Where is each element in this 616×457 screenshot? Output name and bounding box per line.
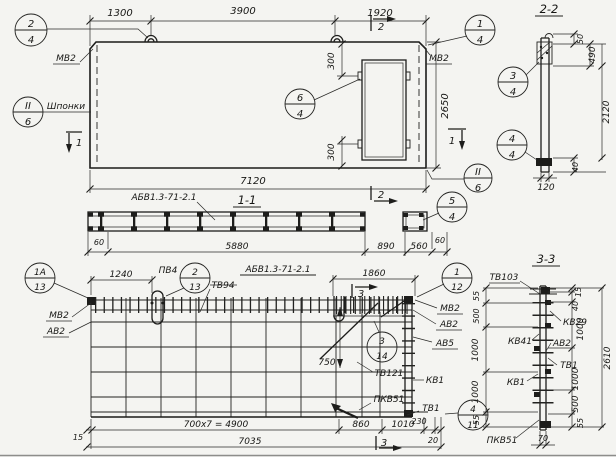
top-view: 1300 3900 1920 7120 2650 300 300 1 1 2 bbox=[47, 6, 466, 204]
callout-bottom: 11 bbox=[467, 421, 478, 431]
marker-3-label: 3 bbox=[358, 289, 364, 300]
callout-bottom: 6 bbox=[25, 117, 31, 128]
label-pv4: ПВ4 bbox=[159, 266, 178, 276]
label-mv2: МВ2 bbox=[49, 311, 69, 321]
bottom-anchor-block bbox=[536, 158, 552, 166]
callout-top: 5 bbox=[449, 196, 455, 207]
dim-70: 70 bbox=[538, 434, 548, 443]
callout-top: II bbox=[475, 167, 481, 178]
marker-2-label: 2 bbox=[378, 22, 384, 33]
section-2-2-title: 2-2 bbox=[540, 2, 559, 16]
dim-490: 490 bbox=[588, 46, 598, 63]
dim-55: 55 bbox=[472, 291, 481, 301]
section-2-2: 2-2 50 490 2120 40 120 bbox=[533, 2, 612, 193]
callout-bottom: 4 bbox=[477, 35, 483, 46]
dim-5880: 5880 bbox=[226, 242, 249, 252]
label-tv1: ТВ1 bbox=[560, 361, 577, 371]
callout-bottom: 4 bbox=[297, 109, 303, 120]
anchor-blocks bbox=[534, 287, 551, 428]
callout-bottom: 13 bbox=[189, 283, 201, 293]
callout-3-4: 3 4 bbox=[498, 62, 539, 98]
slab-profile bbox=[88, 212, 365, 231]
marker-2-label: 2 bbox=[378, 190, 384, 201]
dim-15: 15 bbox=[73, 433, 83, 442]
section-marker-3-bottom: 3 bbox=[376, 436, 402, 451]
label-kv41: КВ41 bbox=[508, 337, 532, 347]
dim-1860: 1860 bbox=[363, 269, 386, 279]
panel-outline bbox=[90, 42, 426, 168]
label-kv1: КВ1 bbox=[426, 376, 444, 386]
callout-1A-13: 1А 13 bbox=[25, 263, 88, 298]
label-av2: АВ2 bbox=[552, 339, 571, 349]
dim-40: 40 bbox=[571, 301, 580, 311]
label-tv103: ТВ103 bbox=[490, 273, 519, 283]
callout-top: 3 bbox=[379, 337, 385, 347]
section-3-3: 3-3 55 500 1000 1000 55 15 40 1000 1000 … bbox=[471, 252, 613, 449]
dim-500: 500 bbox=[571, 395, 581, 412]
section-1-1: 1-1 АБВ1.3-71-2.1 60 5880 890 560 60 bbox=[85, 193, 451, 256]
label-av2: АВ2 bbox=[46, 327, 65, 337]
end-slab-piece bbox=[403, 212, 427, 231]
label-tv121: ТВ121 bbox=[375, 369, 404, 379]
dim-750: 750 bbox=[318, 358, 335, 368]
dim-60-right: 60 bbox=[435, 236, 445, 245]
callout-bottom: 12 bbox=[451, 283, 463, 293]
dim-300-top: 300 bbox=[327, 52, 337, 69]
dim-40: 40 bbox=[571, 162, 580, 172]
dim-3900: 3900 bbox=[230, 6, 255, 17]
callout-top: 1 bbox=[454, 268, 460, 278]
callout-1-4: 1 4 bbox=[428, 15, 495, 46]
section-3-3-title: 3-3 bbox=[537, 252, 556, 266]
callout-II-6-right: II 6 bbox=[427, 164, 492, 194]
edge-ladder-kv1 bbox=[405, 298, 412, 417]
callout-bottom: 14 bbox=[376, 352, 388, 362]
dim-700x7: 700x7 = 4900 bbox=[184, 420, 249, 430]
label-kv1: КВ1 bbox=[507, 378, 525, 388]
callout-top: II bbox=[25, 101, 31, 112]
dim-230: 230 bbox=[411, 417, 426, 426]
callout-bottom: 4 bbox=[28, 35, 34, 46]
section-1-1-title: 1-1 bbox=[238, 193, 257, 207]
callout-top: 4 bbox=[470, 405, 476, 415]
callout-bottom: 4 bbox=[510, 87, 516, 98]
reinforcement-plan: АБВ1.3-71-2.1 1240 bbox=[43, 265, 463, 451]
dim-120: 120 bbox=[537, 183, 554, 193]
dim-1000: 1000 bbox=[471, 338, 481, 361]
callout-3-14: 3 14 bbox=[367, 321, 397, 362]
dim-2650: 2650 bbox=[440, 93, 451, 118]
callout-top: 2 bbox=[28, 19, 34, 30]
label-mv2: МВ2 bbox=[440, 304, 460, 314]
section-bar bbox=[540, 286, 546, 430]
mesh-band-mv2 bbox=[91, 300, 412, 316]
dim-7035: 7035 bbox=[239, 437, 262, 447]
callout-bottom: 4 bbox=[449, 212, 455, 223]
dim-1300: 1300 bbox=[107, 8, 132, 19]
panel-drawing-svg: 1300 3900 1920 7120 2650 300 300 1 1 2 bbox=[0, 0, 616, 457]
label-pkv51: ПКВ51 bbox=[487, 436, 518, 446]
callout-bottom: 6 bbox=[475, 183, 481, 194]
dim-860: 860 bbox=[352, 420, 369, 430]
dim-50: 50 bbox=[576, 34, 585, 44]
label-pkv51: ПКВ51 bbox=[374, 395, 405, 405]
section-marker-1-left: 1 bbox=[66, 132, 82, 153]
callout-1-12: 1 12 bbox=[417, 263, 472, 297]
label-av5: АВ5 bbox=[435, 339, 454, 349]
drawing-sheet: 1300 3900 1920 7120 2650 300 300 1 1 2 bbox=[0, 0, 616, 457]
callout-top: 3 bbox=[510, 71, 516, 82]
callout-top: 4 bbox=[509, 134, 515, 145]
callout-top: 2 bbox=[192, 268, 198, 278]
callout-top: 1 bbox=[477, 19, 483, 30]
label-tv1: ТВ1 bbox=[422, 404, 439, 414]
label-series-1-1: АБВ1.3-71-2.1 bbox=[130, 193, 196, 203]
label-mv2-left: МВ2 bbox=[56, 54, 76, 64]
dim-560: 560 bbox=[410, 242, 427, 252]
dim-300-bottom: 300 bbox=[327, 143, 337, 160]
dim-55: 55 bbox=[576, 418, 585, 428]
dim-2610: 2610 bbox=[603, 346, 613, 369]
dim-7120: 7120 bbox=[240, 176, 265, 187]
section-marker-1-right: 1 bbox=[448, 129, 466, 150]
callout-bottom: 13 bbox=[34, 283, 46, 293]
lifting-hook-icon bbox=[331, 36, 343, 42]
dim-500: 500 bbox=[472, 308, 481, 323]
callout-top: 6 bbox=[297, 93, 303, 104]
dim-15: 15 bbox=[574, 287, 583, 297]
callout-6-4: 6 4 bbox=[285, 79, 360, 120]
callouts: 2 4 II 6 1 4 3 4 4 4 bbox=[13, 14, 539, 431]
label-shponki: Шпонки bbox=[47, 102, 85, 112]
label-tv94: ТВ94 bbox=[211, 281, 234, 291]
marker-1-label: 1 bbox=[76, 138, 82, 149]
callout-bottom: 4 bbox=[509, 150, 515, 161]
dim-2120: 2120 bbox=[602, 100, 612, 123]
label-mv2-right: МВ2 bbox=[429, 54, 449, 64]
dim-20: 20 bbox=[428, 436, 438, 445]
dim-60-left: 60 bbox=[94, 238, 104, 247]
callout-4-11: 4 11 bbox=[445, 400, 488, 431]
marker-1-label: 1 bbox=[449, 136, 455, 147]
dim-890: 890 bbox=[377, 242, 394, 252]
dim-1240: 1240 bbox=[110, 270, 133, 280]
horizontal-rebar-grid bbox=[91, 322, 412, 397]
hook-section-icon bbox=[545, 34, 553, 39]
callout-top: 1А bbox=[34, 268, 46, 278]
plan-series-title: АБВ1.3-71-2.1 bbox=[244, 265, 310, 275]
callout-5-4: 5 4 bbox=[423, 192, 467, 223]
callout-4-4: 4 4 bbox=[497, 130, 537, 161]
marker-3-label: 3 bbox=[381, 438, 387, 449]
label-kv29: КВ29 bbox=[563, 318, 587, 328]
label-av2: АВ2 bbox=[439, 320, 458, 330]
mesh-zone-section bbox=[537, 42, 552, 64]
panel-opening bbox=[358, 60, 410, 160]
